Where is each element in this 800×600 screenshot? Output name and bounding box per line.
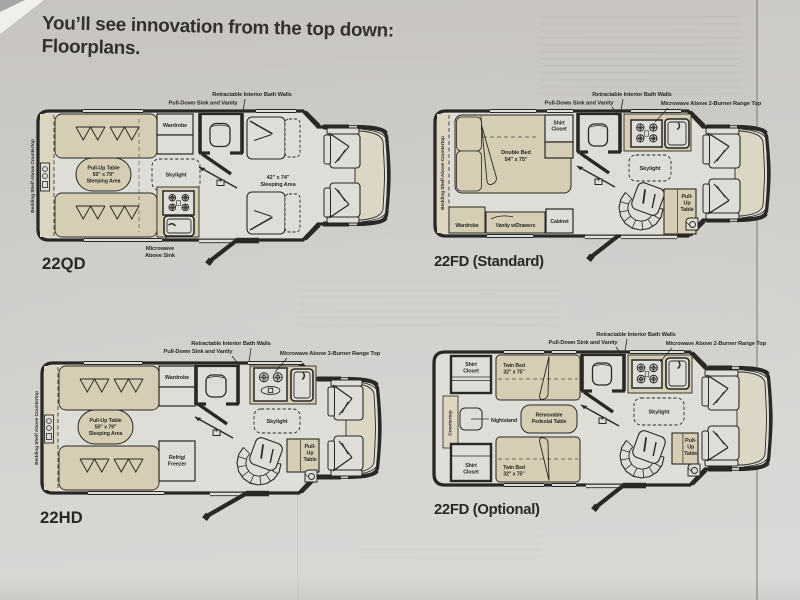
svg-text:Retractable Interior Bath Wall: Retractable Interior Bath Walls: [191, 341, 271, 347]
svg-text:Countertop: Countertop: [448, 410, 454, 435]
svg-text:Microwave Above 3-Burner Range: Microwave Above 3-Burner Range Top: [280, 351, 381, 357]
svg-text:Floorplans.: Floorplans.: [41, 36, 140, 59]
svg-text:Twin Bed: Twin Bed: [503, 465, 525, 471]
svg-text:Microwave Above 2-Burner Range: Microwave Above 2-Burner Range Top: [661, 101, 762, 107]
svg-text:22FD (Optional): 22FD (Optional): [434, 502, 540, 518]
svg-text:Pull-: Pull-: [681, 194, 692, 200]
svg-text:Skylight: Skylight: [166, 173, 187, 179]
svg-text:32" x 75": 32" x 75": [503, 471, 525, 477]
svg-text:Pull-Down Sink and Vanity: Pull-Down Sink and Vanity: [169, 101, 239, 107]
svg-text:Vanity w/Drawers: Vanity w/Drawers: [496, 223, 536, 229]
svg-text:32" x 75": 32" x 75": [503, 369, 525, 375]
svg-text:Retractable Interior Bath Wall: Retractable Interior Bath Walls: [212, 92, 292, 98]
svg-text:Pull-Down Sink and Vanity: Pull-Down Sink and Vanity: [164, 349, 234, 355]
svg-text:Microwave: Microwave: [146, 246, 174, 252]
svg-text:50" x 79": 50" x 79": [93, 172, 115, 178]
svg-text:Twin Bed: Twin Bed: [503, 363, 525, 369]
svg-text:Pull-Down Sink and Vanity: Pull-Down Sink and Vanity: [545, 101, 615, 107]
svg-text:Shirt: Shirt: [465, 463, 477, 469]
svg-text:Pull-: Pull-: [685, 438, 696, 444]
svg-text:Pull-: Pull-: [304, 444, 315, 450]
svg-text:Removable: Removable: [536, 413, 563, 419]
svg-text:Sleeping Area: Sleeping Area: [87, 179, 121, 185]
svg-text:Table: Table: [303, 457, 316, 463]
svg-text:Bedding Shelf Above Countertop: Bedding Shelf Above Countertop: [30, 139, 36, 213]
svg-text:Up: Up: [684, 201, 692, 207]
svg-text:Pull-Down Sink and Vanity: Pull-Down Sink and Vanity: [549, 340, 619, 346]
svg-text:Cabinet: Cabinet: [550, 219, 569, 225]
svg-text:Table: Table: [680, 207, 693, 213]
svg-text:Nightstand: Nightstand: [491, 418, 517, 424]
svg-text:22FD (Standard): 22FD (Standard): [434, 254, 544, 270]
svg-text:Table: Table: [684, 451, 697, 457]
svg-text:Sleeping Area: Sleeping Area: [260, 182, 296, 188]
svg-text:Refrig/: Refrig/: [169, 455, 186, 461]
svg-text:Shirt: Shirt: [465, 362, 477, 368]
svg-text:Bedding Shelf Above Countertop: Bedding Shelf Above Countertop: [34, 391, 40, 465]
svg-text:Pedestal Table: Pedestal Table: [532, 419, 567, 425]
svg-text:Wardrobe: Wardrobe: [455, 223, 478, 229]
svg-text:Closet: Closet: [551, 127, 567, 133]
svg-text:Skylight: Skylight: [267, 419, 288, 425]
svg-text:Pull-Up Table: Pull-Up Table: [89, 418, 121, 424]
svg-text:22HD: 22HD: [40, 508, 83, 527]
svg-text:Above Sink: Above Sink: [145, 253, 176, 259]
svg-text:42" x 74": 42" x 74": [267, 175, 290, 181]
svg-text:Retractable Interior Bath Wall: Retractable Interior Bath Walls: [592, 92, 672, 98]
svg-text:Sleeping Area: Sleeping Area: [89, 431, 123, 437]
svg-text:Retractable Interior Bath Wall: Retractable Interior Bath Walls: [596, 332, 676, 338]
svg-text:Up: Up: [687, 445, 695, 451]
svg-text:Microwave Above 2-Burner Range: Microwave Above 2-Burner Range Top: [666, 341, 767, 347]
svg-text:Freezer: Freezer: [168, 462, 187, 468]
svg-text:50" x 79": 50" x 79": [95, 425, 117, 431]
svg-text:Closet: Closet: [463, 469, 479, 475]
svg-text:22QD: 22QD: [42, 254, 86, 273]
svg-text:Wardrobe: Wardrobe: [165, 375, 189, 381]
svg-text:Up: Up: [307, 451, 315, 457]
svg-text:Skylight: Skylight: [649, 410, 670, 416]
svg-text:Skylight: Skylight: [640, 166, 661, 172]
svg-text:Pull-Up Table: Pull-Up Table: [87, 166, 119, 172]
svg-text:Double Bed: Double Bed: [501, 150, 531, 156]
svg-text:Closet: Closet: [463, 368, 479, 374]
svg-text:54" x 75": 54" x 75": [505, 157, 528, 163]
svg-text:Bedding Shelf Above Countertop: Bedding Shelf Above Countertop: [440, 136, 446, 210]
svg-text:Wardrobe: Wardrobe: [163, 123, 187, 129]
